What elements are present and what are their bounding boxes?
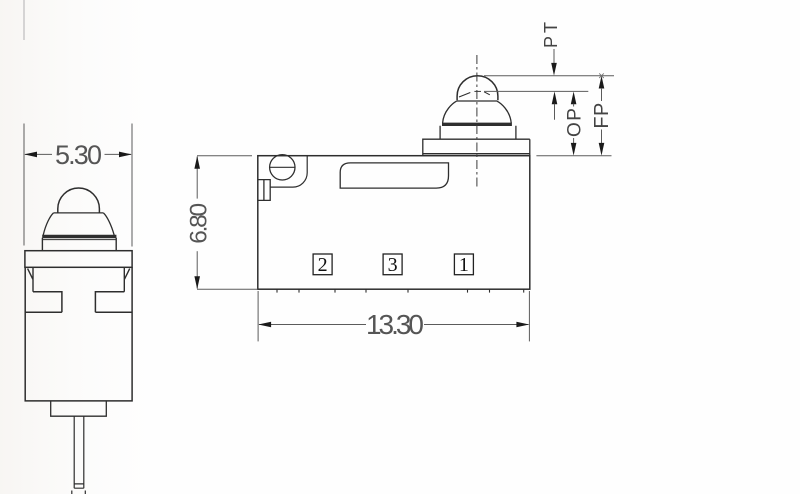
svg-text:OP: OP [565, 108, 586, 137]
svg-text:1: 1 [459, 254, 469, 276]
svg-text:6.80: 6.80 [185, 203, 212, 244]
svg-text:2: 2 [318, 254, 328, 276]
svg-text:13.30: 13.30 [366, 309, 424, 340]
svg-text:3: 3 [388, 254, 398, 276]
svg-text:FP: FP [591, 103, 613, 129]
svg-text:5.30: 5.30 [55, 140, 102, 170]
